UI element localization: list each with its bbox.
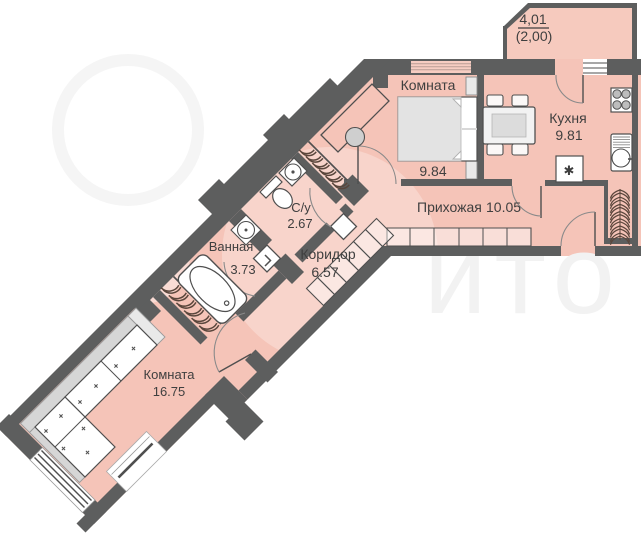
svg-text:2.67: 2.67 bbox=[287, 216, 312, 231]
svg-text:9.81: 9.81 bbox=[555, 127, 582, 143]
svg-text:Ванная: Ванная bbox=[209, 239, 254, 254]
svg-text:Комната: Комната bbox=[144, 367, 196, 382]
svg-text:Коридор: Коридор bbox=[300, 246, 356, 262]
svg-text:6.57: 6.57 bbox=[311, 264, 338, 280]
svg-text:(2,00): (2,00) bbox=[516, 28, 553, 44]
svg-text:✱: ✱ bbox=[564, 163, 575, 178]
svg-text:Комната: Комната bbox=[401, 77, 456, 93]
svg-text:Прихожая: Прихожая bbox=[417, 199, 482, 215]
svg-text:10.05: 10.05 bbox=[486, 199, 521, 215]
svg-text:Кухня: Кухня bbox=[549, 110, 586, 126]
svg-text:9.84: 9.84 bbox=[419, 163, 446, 179]
svg-text:16.75: 16.75 bbox=[153, 384, 186, 399]
svg-text:3.73: 3.73 bbox=[230, 262, 255, 277]
svg-text:С/у: С/у bbox=[291, 200, 311, 215]
svg-text:4,01: 4,01 bbox=[519, 11, 546, 27]
